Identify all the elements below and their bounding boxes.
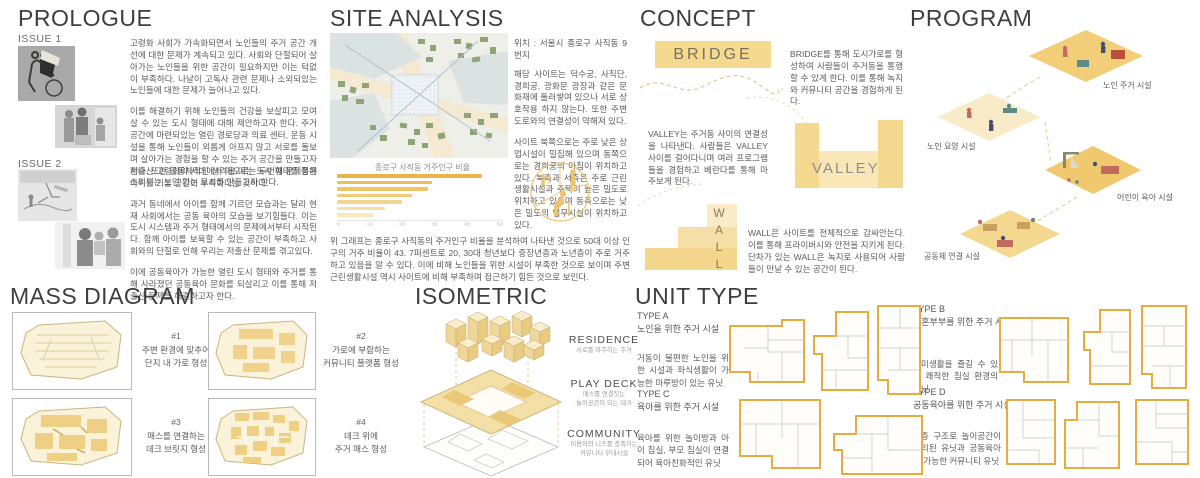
up-arrow-icon (547, 175, 551, 184)
mass-step-3-number: #3 (136, 416, 216, 428)
mass-step-2-line1: 가로에 부합하는 (332, 345, 390, 355)
mass-step-1-line2: 단지 내 가로 형성 (145, 358, 208, 368)
bridge-diagram: BRIDGE (655, 41, 771, 68)
iso-play-deck-plate (421, 370, 561, 434)
issue1-label: ISSUE 1 (18, 33, 62, 45)
mass-step-4-line1: 데크 위에 (344, 431, 378, 441)
community-label: COMMUNITY (560, 428, 648, 440)
family-photo-shapes (55, 222, 125, 269)
population-bar (337, 207, 503, 211)
isometric-diagram (416, 306, 568, 476)
mass-step-4-caption: #4 데크 위에 주거 매스 형성 (318, 416, 404, 455)
mass-step-3-caption: #3 매스를 연결하는 데크 브릿지 형성 (136, 416, 216, 455)
concept-title: CONCEPT (640, 5, 756, 32)
play-deck-sub2: 놀이공간이 되는 데크 (560, 399, 648, 408)
mass-step-2-image (208, 312, 316, 390)
floor-plan-b2 (1082, 308, 1132, 386)
mass-step-3-line1: 매스를 연결하는 (147, 431, 205, 441)
mass-step-2-number: #2 (318, 330, 404, 342)
floor-plan-c1 (738, 398, 822, 470)
population-bar (337, 200, 503, 204)
type-d-header: TYPE D 공동육아를 위한 주거 시설 (913, 386, 1018, 412)
chart-analysis-note: 위 그래프는 종로구 사직동의 주거인구 비율을 분석하여 나타낸 것으로 50… (330, 236, 630, 283)
unit-type-title: UNIT TYPE (635, 283, 759, 310)
floor-plan-c2 (832, 414, 924, 476)
wheelchair-icon (18, 46, 75, 101)
site-map-graphic (330, 33, 508, 158)
site-location: 위치 : 서울시 종로구 사직동 9번지 (514, 38, 627, 62)
caregivers-photo-shapes (55, 105, 117, 148)
mass-step-3-line2: 데크 브릿지 형성 (146, 444, 206, 454)
playground-sketch-icon (18, 169, 77, 221)
play-deck-sub1: 매스를 연결짓는 (560, 390, 648, 399)
type-a-desc: 거동이 불편한 노인을 위한 시설과 좌식생활이 가능한 마루방이 있는 유닛 (637, 352, 729, 389)
mass-step-2-line2: 커뮤니티 플랫폼 형성 (323, 358, 399, 368)
mass-step-4-image (208, 398, 316, 476)
population-bar (337, 194, 503, 198)
mass-step-1-caption: #1 주변 환경에 맞추어 단지 내 가로 형성 (136, 330, 216, 369)
community-sub1: 이용자의 니즈를 충족하는 (560, 440, 648, 449)
type-a-subtitle: 노인을 위한 주거 시설 (637, 324, 719, 334)
axis-tick-label: 30 (432, 222, 438, 228)
floor-plan-d2 (1063, 400, 1121, 470)
floor-plan-b1 (998, 316, 1070, 384)
program-label-senior-housing: 노인 주거 시설 (1103, 80, 1152, 91)
type-b-subtitle: 신혼부부를 위한 주거 시설 (913, 317, 1012, 327)
mass-diagram-title: MASS DIAGRAM (10, 283, 195, 310)
small-person-icon (541, 174, 545, 178)
tile-childcare (1045, 146, 1141, 194)
axis-tick-label: 0 (337, 222, 340, 228)
issue2-paragraph-2: 과거 동네에서 아이를 함께 기르던 모습과는 달리 현재 사회에서는 공동 육… (130, 199, 317, 258)
demographic-circle-diagram (528, 160, 592, 224)
population-chart-title: 종로구 사직동 거주인구 비율 (340, 162, 505, 173)
floor-plan-a1 (728, 318, 806, 384)
floor-plan-d1 (1005, 398, 1057, 466)
valley-wall-connector (636, 182, 706, 208)
type-c-name: TYPE C (637, 389, 670, 399)
bridge-diagram-label: BRIDGE (673, 46, 752, 64)
residence-sub: 서로를 마주하는 주거 (560, 346, 648, 355)
iso-label-play-deck: PLAY DECK 매스를 연결짓는 놀이공간이 되는 데크 (560, 378, 648, 409)
valley-text: VALLEY는 주거동 사이의 연결성을 나타낸다. 사람들은 VALLEY 사… (648, 129, 768, 188)
residence-label: RESIDENCE (560, 334, 648, 346)
iso-label-community: COMMUNITY 이용자의 니즈를 충족하는 커뮤니티 부대시설 (560, 428, 648, 459)
issue2-illustration-playground (18, 169, 77, 221)
axis-tick-label: 50 (497, 222, 503, 228)
type-a-name: TYPE A (637, 311, 669, 321)
population-chart: 01020304050 (337, 174, 503, 228)
floor-plan-a2 (812, 310, 870, 392)
axis-tick-label: 40 (464, 222, 470, 228)
prologue-title: PROLOGUE (18, 5, 152, 32)
program-label-community: 공동체 연결 시설 (924, 251, 980, 262)
wall-text: WALL은 사이트를 전체적으로 감싸안는다. 이를 통해 프라이버시와 안전을… (748, 228, 905, 275)
site-analysis-title: SITE ANALYSIS (330, 5, 504, 32)
mass-step-4-line2: 주거 매스 형성 (335, 444, 387, 454)
program-label-childcare: 어린이 육아 시설 (1117, 192, 1173, 203)
type-d-subtitle: 공동육아를 위한 주거 시설 (913, 400, 1012, 410)
mass-step-2-caption: #2 가로에 부합하는 커뮤니티 플랫폼 형성 (318, 330, 404, 369)
population-axis: 01020304050 (337, 220, 503, 228)
mass-step-1-line1: 주변 환경에 맞추어 (142, 345, 210, 355)
population-bar (337, 181, 503, 185)
bridge-valley-connector (745, 92, 815, 134)
type-a-header: TYPE A 노인을 위한 주거 시설 (637, 310, 732, 336)
issue1-photo-caregivers (55, 105, 117, 148)
tile-senior-housing (1029, 30, 1143, 82)
population-bar (337, 213, 503, 217)
type-c-subtitle: 육아를 위한 주거 시설 (637, 402, 719, 412)
type-c-header: TYPE C 육아를 위한 주거 시설 (637, 388, 732, 414)
issue1-illustration-wheelchair (18, 46, 75, 101)
adult-person-icon (570, 169, 576, 175)
elderly-person-icon (560, 191, 566, 197)
floor-plan-a3 (876, 304, 922, 396)
site-map (330, 33, 508, 158)
tile-senior-care (938, 93, 1040, 141)
wall-diagram-label: WALL (712, 206, 726, 272)
axis-tick-label: 20 (399, 222, 405, 228)
mass-step-3-image (12, 398, 132, 476)
population-bar (337, 187, 503, 191)
type-d-desc: 복층 구조로 놀이공간이 분리된 유닛과 공동육아가 가능한 커뮤니티 유닛 (913, 430, 1001, 467)
valley-diagram-label: VALLEY (812, 160, 880, 177)
mass-step-4-number: #4 (318, 416, 404, 428)
population-bars (337, 174, 503, 217)
axis-tick-label: 10 (367, 222, 373, 228)
type-c-desc: 육아를 위한 놀이방과 아이 침실, 부모 침실이 연결되어 육아친화적인 유닛 (637, 432, 729, 469)
issue2-photo-family (55, 222, 125, 269)
mass-step-1-image (12, 312, 132, 390)
mass-step-1-number: #1 (136, 330, 216, 342)
iso-label-residence: RESIDENCE 서로를 마주하는 주거 (560, 334, 648, 355)
floor-plan-d3 (1134, 398, 1190, 466)
population-bar (337, 174, 503, 178)
presentation-board: PROLOGUE ISSUE 1 ISSUE 2 (0, 0, 1200, 478)
floor-plan-b3 (1140, 304, 1188, 390)
community-sub2: 커뮤니티 부대시설 (560, 449, 648, 458)
issue2-paragraph-1: 저출산 고령화의 시대에서 떠오르는 두번째 문제점은 아이를 기를 공간이 부… (130, 166, 317, 190)
iso-residence-blocks (446, 311, 550, 362)
site-paragraph-1: 해당 사이트는 덕수궁, 사직단, 경희궁, 광화문 광장과 같은 문화재에 둘… (514, 69, 627, 128)
program-label-senior-care: 노인 요양 시설 (927, 141, 976, 152)
play-deck-label: PLAY DECK (560, 378, 648, 390)
issue1-paragraph-1: 고령화 사회가 가속화되면서 노인들의 주거 공간 개선에 대한 문제가 계속되… (130, 38, 317, 97)
